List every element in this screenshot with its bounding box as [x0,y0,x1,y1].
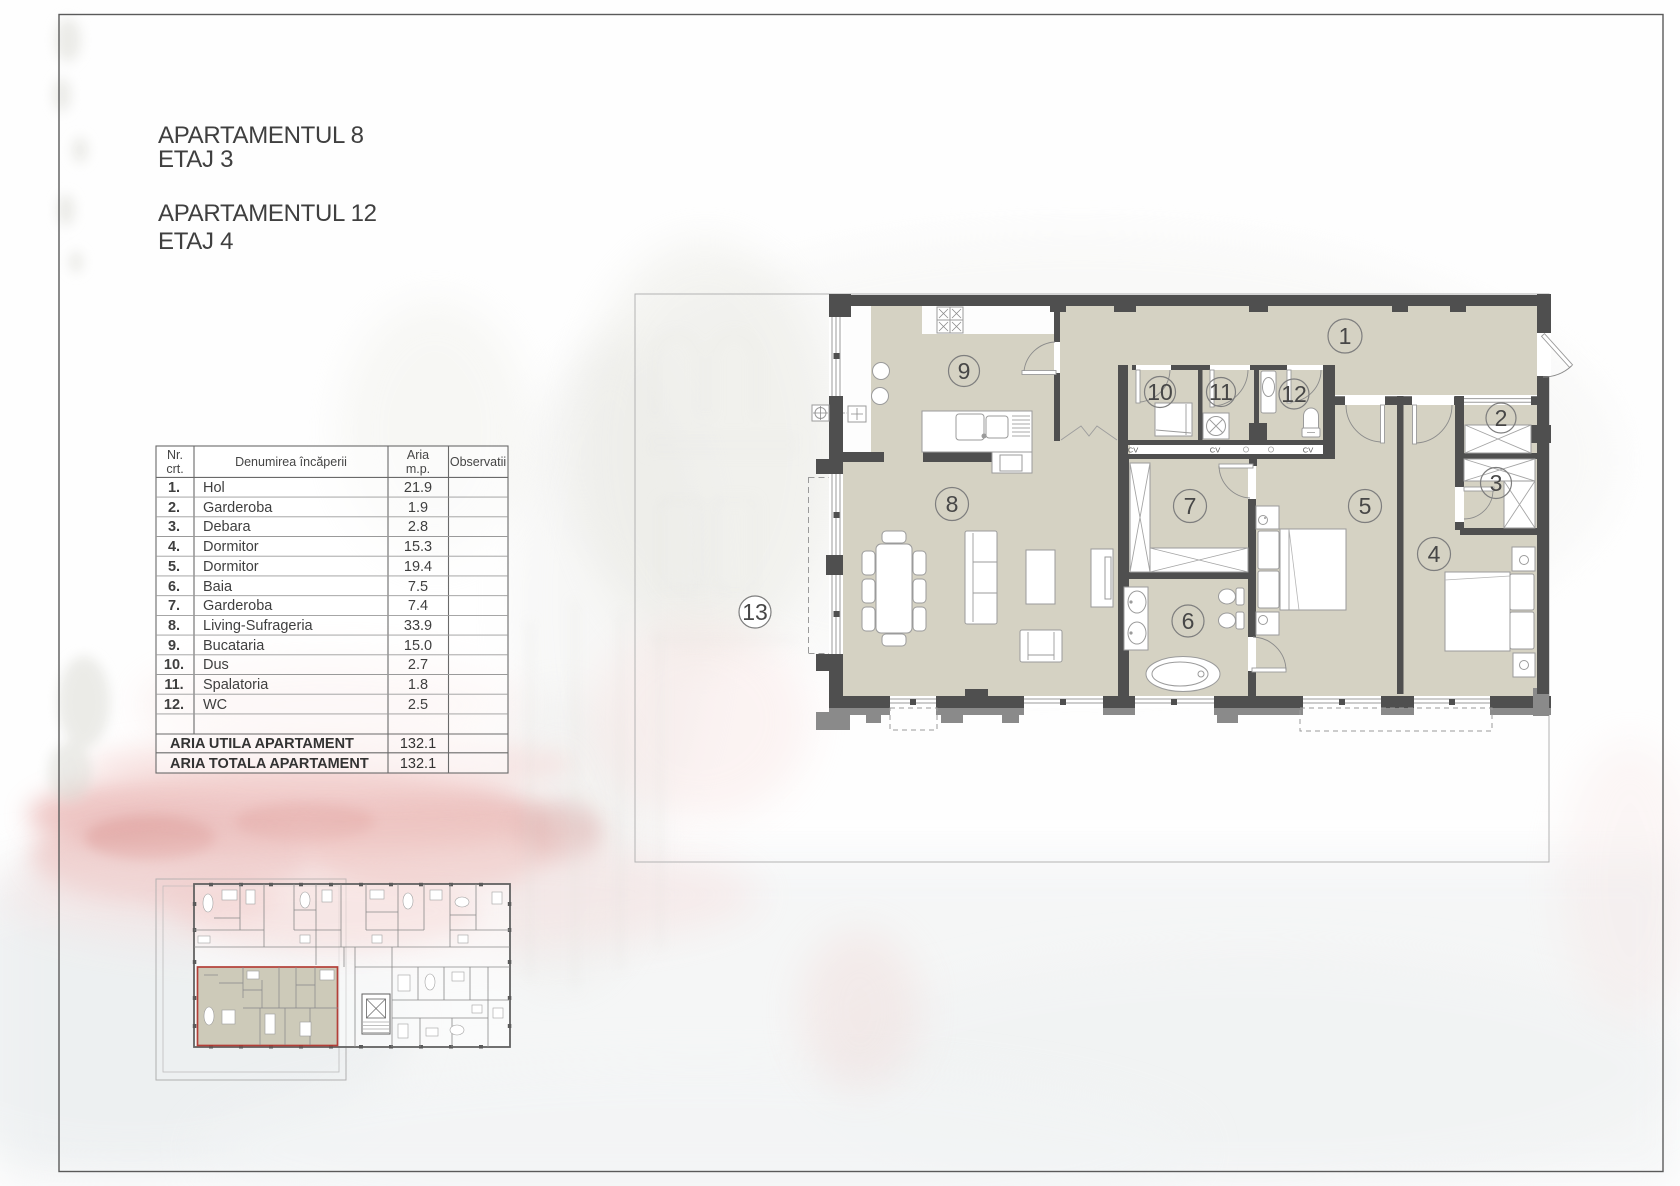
svg-text:10: 10 [1147,379,1173,405]
svg-text:2.5: 2.5 [408,697,428,713]
svg-text:1.: 1. [168,480,180,496]
svg-text:1: 1 [1339,323,1352,349]
svg-text:Observatii: Observatii [450,455,506,469]
svg-text:7.5: 7.5 [408,579,428,595]
svg-text:19.4: 19.4 [404,559,432,575]
svg-text:2.8: 2.8 [408,519,428,535]
svg-text:Garderoba: Garderoba [203,598,273,614]
svg-text:9.: 9. [168,638,180,654]
svg-text:12: 12 [1281,381,1307,407]
svg-text:Nr.: Nr. [167,448,183,462]
svg-text:15.0: 15.0 [404,638,432,654]
svg-text:5: 5 [1359,493,1372,519]
svg-text:3.: 3. [168,519,180,535]
svg-text:m.p.: m.p. [406,462,430,476]
svg-text:APARTAMENTUL 8: APARTAMENTUL 8 [158,122,364,149]
svg-text:132.1: 132.1 [400,756,436,772]
svg-text:13: 13 [742,599,768,625]
svg-text:132.1: 132.1 [400,736,436,752]
svg-text:WC: WC [203,697,227,713]
svg-text:1.9: 1.9 [408,500,428,516]
svg-text:CV: CV [1128,446,1138,455]
svg-text:11: 11 [1209,379,1233,405]
svg-text:8.: 8. [168,618,180,634]
svg-text:Debara: Debara [203,519,251,535]
svg-text:7: 7 [1184,493,1197,519]
svg-text:crt.: crt. [166,462,183,476]
svg-text:9: 9 [958,358,971,384]
svg-text:10.: 10. [164,657,184,673]
svg-text:2.7: 2.7 [408,657,428,673]
svg-text:3: 3 [1490,470,1503,496]
svg-text:2.: 2. [168,500,180,516]
svg-text:Living-Sufrageria: Living-Sufrageria [203,618,314,634]
svg-text:Hol: Hol [203,480,225,496]
svg-text:33.9: 33.9 [404,618,432,634]
svg-text:Dormitor: Dormitor [203,559,259,575]
svg-text:12.: 12. [164,697,184,713]
svg-text:Dus: Dus [203,657,229,673]
svg-text:1.8: 1.8 [408,677,428,693]
svg-text:5.: 5. [168,559,180,575]
svg-text:Baia: Baia [203,579,233,595]
svg-text:ARIA UTILA APARTAMENT: ARIA UTILA APARTAMENT [170,736,354,752]
svg-text:Denumirea încăperii: Denumirea încăperii [235,455,347,469]
svg-text:8: 8 [946,491,959,517]
svg-text:7.4: 7.4 [408,598,428,614]
svg-text:7.: 7. [168,598,180,614]
svg-text:2: 2 [1495,405,1508,431]
svg-text:6: 6 [1182,608,1195,634]
svg-text:4: 4 [1428,541,1441,567]
svg-text:APARTAMENTUL 12: APARTAMENTUL 12 [158,200,377,227]
svg-text:ARIA TOTALA APARTAMENT: ARIA TOTALA APARTAMENT [170,756,369,772]
svg-text:CV: CV [1210,446,1220,455]
svg-text:Garderoba: Garderoba [203,500,273,516]
svg-text:Bucataria: Bucataria [203,638,265,654]
svg-text:Dormitor: Dormitor [203,539,259,555]
svg-text:15.3: 15.3 [404,539,432,555]
svg-text:ETAJ 4: ETAJ 4 [158,228,233,255]
svg-text:6.: 6. [168,579,180,595]
svg-text:11.: 11. [164,677,183,693]
svg-text:Spalatoria: Spalatoria [203,677,269,693]
svg-text:CV: CV [1303,446,1313,455]
svg-text:21.9: 21.9 [404,480,432,496]
svg-text:ETAJ 3: ETAJ 3 [158,146,233,173]
svg-text:Aria: Aria [407,448,429,462]
svg-text:4.: 4. [168,539,180,555]
